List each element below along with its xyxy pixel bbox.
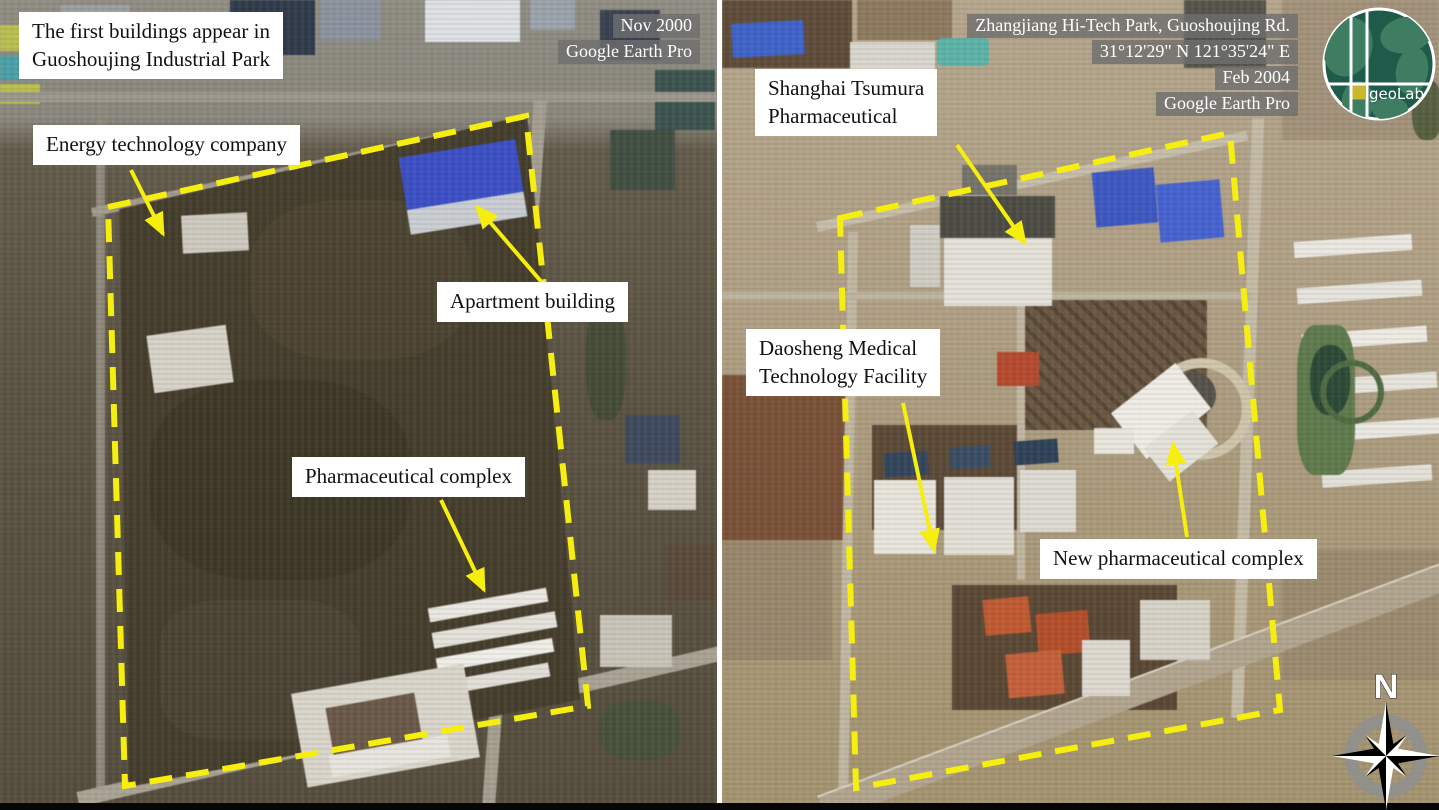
- satellite-feature: [997, 352, 1039, 386]
- satellite-feature: [625, 415, 680, 463]
- satellite-feature: [910, 225, 940, 287]
- satellite-feature: [1140, 600, 1210, 660]
- credit-date: Nov 2000: [558, 14, 700, 38]
- satellite-feature: [1294, 234, 1413, 258]
- satellite-panel-2000: Nov 2000 Google Earth Pro: [0, 0, 717, 810]
- satellite-feature: [883, 450, 929, 477]
- credit-left: Nov 2000 Google Earth Pro: [558, 12, 700, 64]
- satellite-feature: [857, 0, 952, 40]
- satellite-feature: [181, 212, 249, 253]
- satellite-feature: [1320, 360, 1384, 424]
- bottom-black-bar: [0, 803, 1439, 810]
- compass-north-label: N: [1374, 668, 1399, 706]
- satellite-feature: [944, 477, 1014, 555]
- satellite-feature: [1020, 470, 1076, 532]
- label-new-pharma-complex: New pharmaceutical complex: [1040, 539, 1317, 579]
- satellite-feature: [320, 0, 380, 40]
- satellite-feature: [425, 0, 520, 42]
- credit-source: Google Earth Pro: [967, 92, 1298, 116]
- satellite-feature: [1297, 280, 1423, 305]
- satellite-feature: [1156, 179, 1225, 242]
- satellite-feature: [731, 20, 805, 58]
- satellite-feature: [940, 196, 1055, 238]
- credit-date: Feb 2004: [967, 66, 1298, 90]
- satellite-feature: [1094, 428, 1134, 454]
- satellite-feature: [949, 445, 990, 470]
- satellite-feature: [874, 480, 936, 554]
- panel-divider: [717, 0, 722, 810]
- satellite-feature: [962, 165, 1017, 195]
- compass-star: [1332, 702, 1439, 810]
- satellite-feature: [648, 470, 696, 510]
- label-apartment-building: Apartment building: [437, 282, 628, 322]
- satellite-feature: [0, 92, 717, 102]
- label-shanghai-tsumura: Shanghai Tsumura Pharmaceutical: [755, 69, 937, 136]
- credit-coordinates: 31°12'29" N 121°35'24" E: [967, 40, 1298, 64]
- logo-wordmark: geoLab: [1369, 85, 1424, 103]
- satellite-feature: [944, 238, 1052, 306]
- satellite-feature: [1005, 650, 1065, 699]
- satellite-feature: [146, 325, 233, 394]
- credit-right: Zhangjiang Hi-Tech Park, Guoshoujing Rd.…: [967, 12, 1298, 116]
- geolab-logo: geoLab: [1320, 5, 1438, 123]
- satellite-feature: [722, 375, 847, 540]
- label-first-buildings: The first buildings appear in Guoshoujin…: [19, 12, 283, 79]
- credit-place: Zhangjiang Hi-Tech Park, Guoshoujing Rd.: [967, 14, 1298, 38]
- satellite-feature: [1013, 438, 1059, 465]
- satellite-feature: [600, 700, 680, 760]
- satellite-feature: [610, 130, 675, 190]
- satellite-feature: [983, 596, 1032, 636]
- label-pharmaceutical-complex: Pharmaceutical complex: [292, 457, 525, 497]
- satellite-feature: [1082, 640, 1130, 696]
- logo-yellow-square: [1353, 86, 1367, 100]
- label-daosheng-medical: Daosheng Medical Technology Facility: [746, 329, 940, 396]
- satellite-feature: [665, 545, 715, 600]
- satellite-feature: [722, 540, 832, 660]
- compass-rose: N: [1325, 662, 1439, 810]
- satellite-feature: [1092, 167, 1159, 227]
- satellite-texture-left: [0, 0, 717, 810]
- label-energy-company: Energy technology company: [33, 125, 300, 165]
- credit-source: Google Earth Pro: [558, 40, 700, 64]
- satellite-feature: [600, 615, 672, 667]
- figure-stage: Nov 2000 Google Earth Pro Zhangjiang Hi-…: [0, 0, 1439, 810]
